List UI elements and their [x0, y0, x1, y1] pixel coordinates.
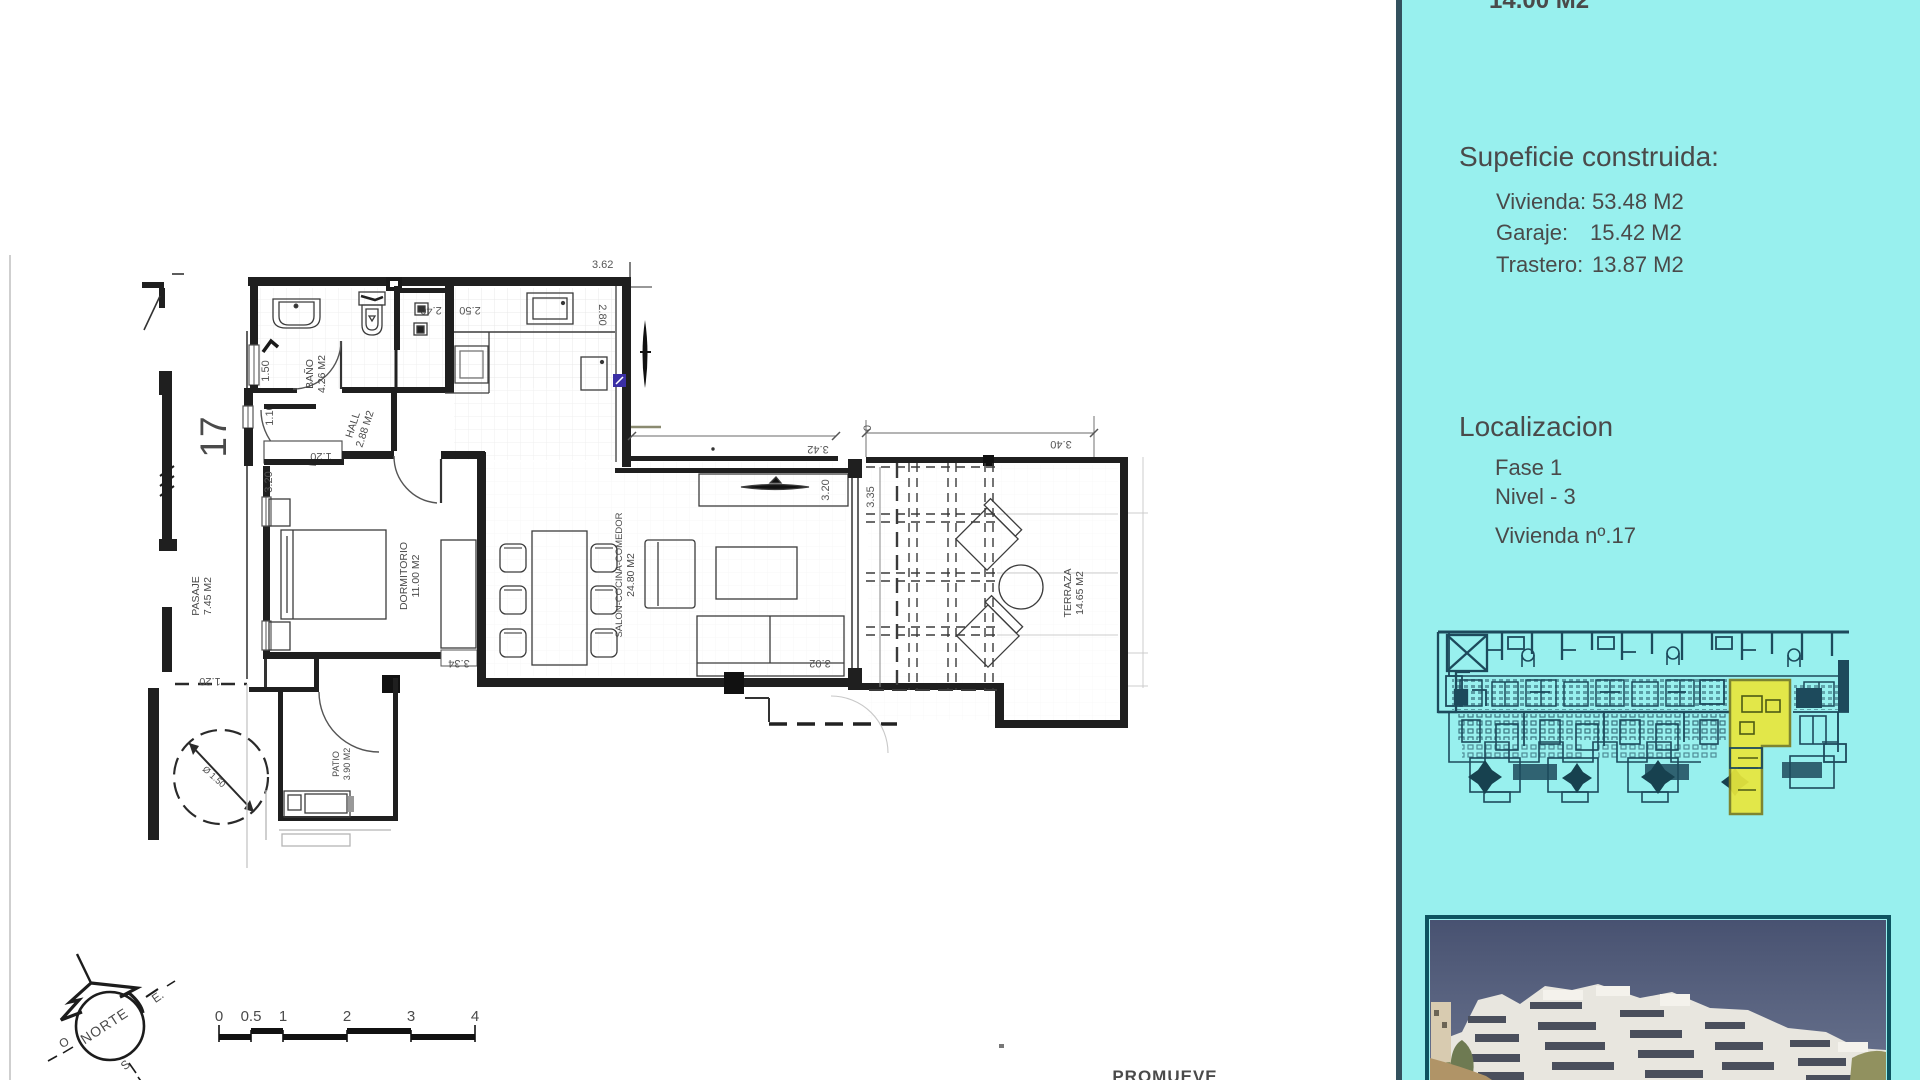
svg-text:TERRAZA: TERRAZA — [1062, 568, 1074, 617]
svg-text:11.00 M2: 11.00 M2 — [410, 554, 422, 597]
svg-text:1.50: 1.50 — [260, 360, 272, 381]
svg-text:17: 17 — [193, 416, 234, 457]
svg-text:13.87 M2: 13.87 M2 — [1592, 252, 1684, 277]
svg-text:3.20: 3.20 — [820, 479, 832, 500]
svg-text:Vivienda nº.17: Vivienda nº.17 — [1495, 523, 1636, 548]
svg-text:2.50: 2.50 — [459, 304, 480, 316]
svg-text:1.20: 1.20 — [199, 675, 220, 687]
svg-text:3.20: 3.20 — [263, 471, 275, 492]
svg-text:24.80 M2: 24.80 M2 — [625, 553, 637, 597]
svg-text:Trastero:: Trastero: — [1496, 252, 1583, 277]
svg-text:BAÑO: BAÑO — [303, 359, 316, 389]
svg-text:14.00 M2: 14.00 M2 — [1489, 0, 1589, 14]
svg-text:Garaje:: Garaje: — [1496, 220, 1568, 245]
svg-text:4: 4 — [471, 1008, 479, 1025]
svg-text:4.26 M2: 4.26 M2 — [316, 355, 328, 393]
svg-text:Vivienda:: Vivienda: — [1496, 189, 1586, 214]
svg-text:Supeficie construida:: Supeficie construida: — [1459, 141, 1719, 172]
svg-text:3.40: 3.40 — [1050, 438, 1071, 450]
svg-text:Localizacion: Localizacion — [1459, 411, 1613, 442]
svg-text:DORMITORIO: DORMITORIO — [398, 542, 410, 610]
svg-text:Nivel - 3: Nivel - 3 — [1495, 484, 1576, 509]
svg-text:0: 0 — [862, 425, 874, 431]
svg-text:3: 3 — [407, 1008, 415, 1025]
svg-text:14.65 M2: 14.65 M2 — [1074, 571, 1086, 615]
svg-text:PASAJE: PASAJE — [190, 576, 202, 616]
svg-text:7.45 M2: 7.45 M2 — [202, 577, 214, 615]
svg-text:15.42 M2: 15.42 M2 — [1590, 220, 1682, 245]
svg-text:SALON-COCINA-COMEDOR: SALON-COCINA-COMEDOR — [614, 512, 625, 637]
svg-text:53.48 M2: 53.48 M2 — [1592, 189, 1684, 214]
svg-text:0: 0 — [215, 1008, 223, 1025]
svg-text:0.5: 0.5 — [241, 1008, 262, 1025]
svg-text:PATIO: PATIO — [331, 751, 341, 777]
svg-text:2.80: 2.80 — [596, 304, 608, 325]
svg-text:3.34: 3.34 — [448, 657, 469, 669]
svg-text:3.90 M2: 3.90 M2 — [342, 748, 352, 781]
svg-text:3.35: 3.35 — [865, 486, 877, 507]
svg-text:3.02: 3.02 — [809, 657, 830, 669]
svg-text:Fase 1: Fase 1 — [1495, 455, 1562, 480]
svg-text:3.42: 3.42 — [807, 443, 828, 455]
svg-text:3.62: 3.62 — [592, 259, 613, 271]
svg-text:PROMUEVE: PROMUEVE — [1112, 1067, 1217, 1080]
svg-text:2: 2 — [343, 1008, 351, 1025]
svg-text:1: 1 — [279, 1008, 287, 1025]
